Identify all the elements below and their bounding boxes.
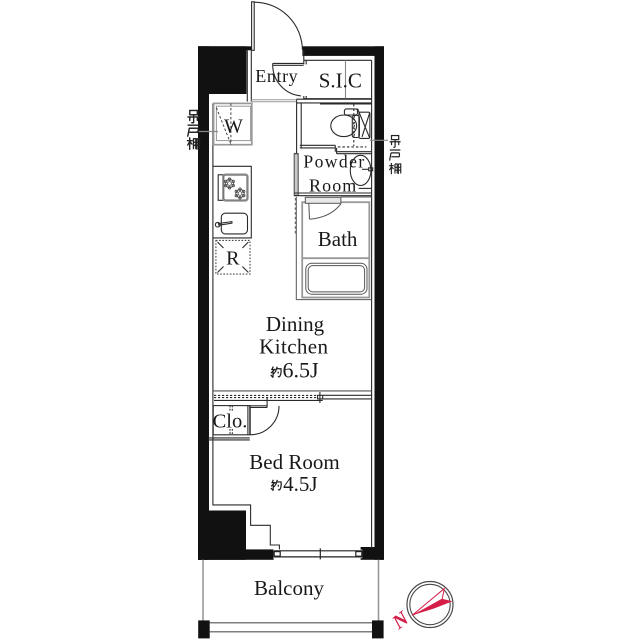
svg-text:S.I.C: S.I.C <box>319 68 362 92</box>
svg-text:Dining: Dining <box>266 312 325 336</box>
svg-text:Bed Room: Bed Room <box>249 450 339 474</box>
svg-text:Entry: Entry <box>255 66 298 86</box>
svg-text:Powder: Powder <box>303 152 365 172</box>
svg-text:6.5J: 6.5J <box>282 358 319 383</box>
svg-text:R: R <box>226 248 240 270</box>
svg-text:W: W <box>224 116 243 138</box>
svg-text:Balcony: Balcony <box>254 576 324 600</box>
svg-text:Bath: Bath <box>318 227 358 251</box>
svg-text:4.5J: 4.5J <box>283 472 317 496</box>
svg-text:Clo.: Clo. <box>213 411 248 433</box>
svg-text:Room: Room <box>309 176 357 196</box>
svg-text:Kitchen: Kitchen <box>259 334 328 358</box>
